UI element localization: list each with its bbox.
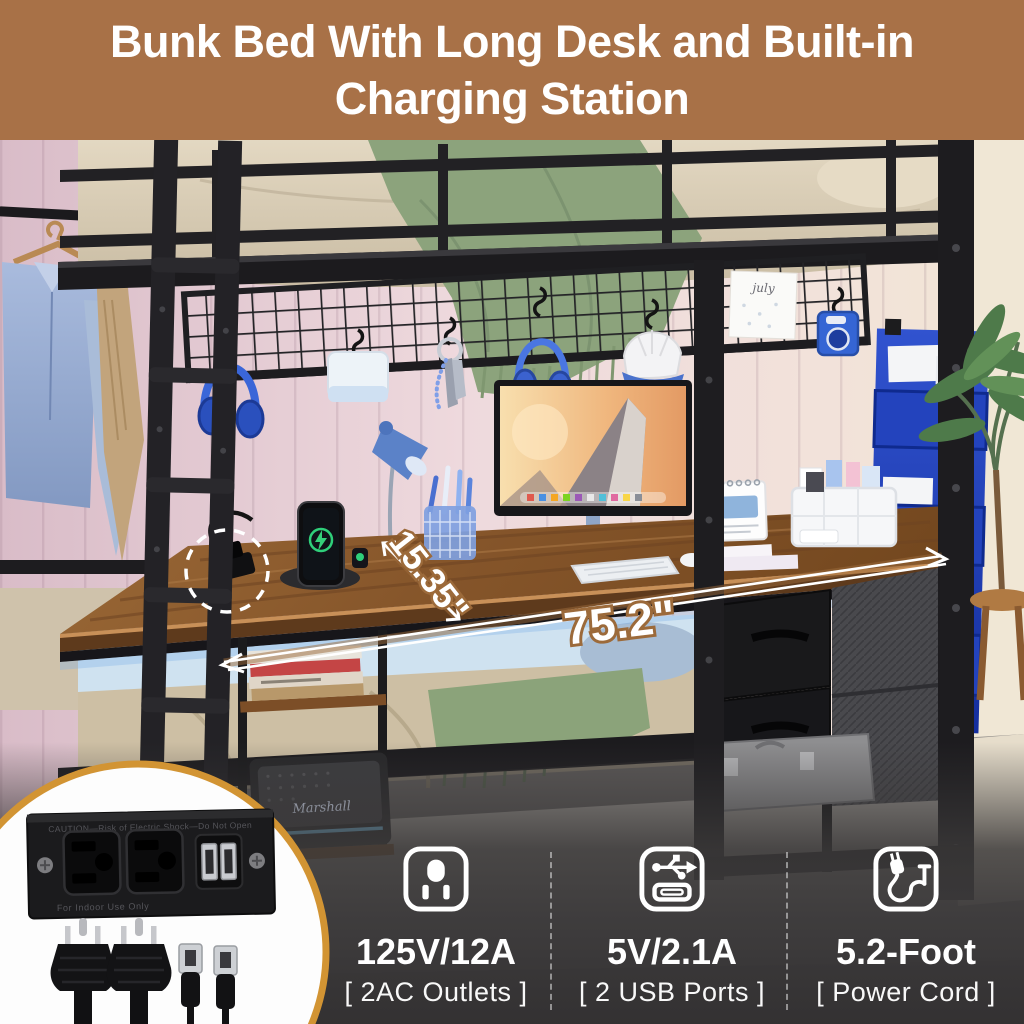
spec-power-cord: 5.2-Foot [ Power Cord ] [796,845,1016,1021]
drawer-handle-bottom [752,726,808,731]
drawer-handle-top [752,634,808,639]
usb-ports [195,834,242,889]
note-card: july [729,271,797,339]
power-cord-icon [872,845,940,913]
ac-outlet-1 [63,831,120,895]
note-text: july [749,281,775,296]
ac-outlet-2 [126,829,183,893]
hanging-bin [328,352,388,402]
spec-value-cord: 5.2-Foot [836,931,976,973]
spec-label-outlets: [ 2AC Outlets ] [344,977,527,1008]
page-title-line2: Charging Station [335,70,689,127]
charging-panel: CAUTION—Risk of Electric Shock—Do Not Op… [27,809,275,918]
spec-label-usb: [ 2 USB Ports ] [579,977,765,1008]
page-title-line1: Bunk Bed With Long Desk and Built-in [110,13,914,70]
product-image: Bunk Bed With Long Desk and Built-in Cha… [0,0,1024,1024]
ac-outlet-icon [402,845,470,913]
spec-divider-1 [550,852,552,1010]
spec-ac-outlets: 125V/12A [ 2AC Outlets ] [326,845,546,1021]
panel-indoor-text: For Indoor Use Only [57,901,150,913]
usb-icon [638,845,706,913]
spec-label-cord: [ Power Cord ] [816,977,996,1008]
hanging-speaker [818,312,858,355]
spec-divider-2 [786,852,788,1010]
spec-value-usb: 5V/2.1A [607,931,737,973]
spec-usb-ports: 5V/2.1A [ 2 USB Ports ] [562,845,782,1021]
spec-value-outlets: 125V/12A [356,931,516,973]
title-banner: Bunk Bed With Long Desk and Built-in Cha… [0,0,1024,140]
